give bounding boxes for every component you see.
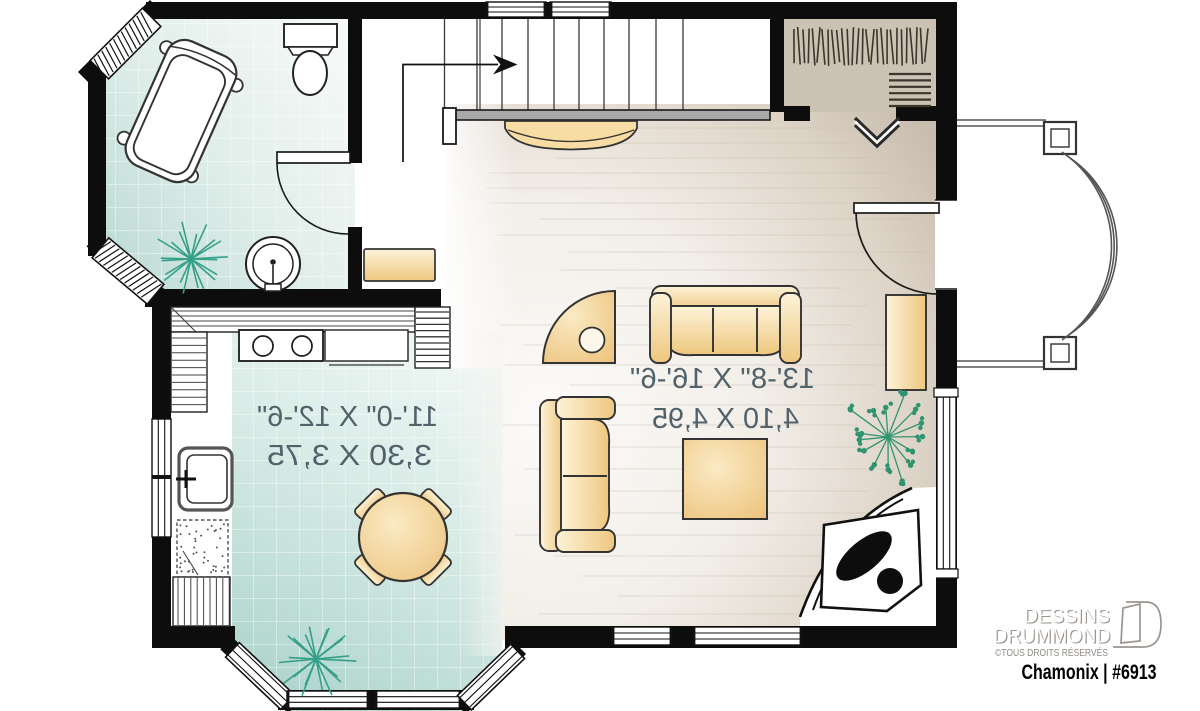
svg-text:11'-0" X 12'-6": 11'-0" X 12'-6"	[257, 401, 438, 433]
svg-text:13'-8" X 16'-6": 13'-8" X 16'-6"	[630, 363, 815, 395]
svg-text:DESSINS: DESSINS	[1024, 605, 1110, 627]
svg-text:3,30 X 3,75: 3,30 X 3,75	[267, 440, 432, 472]
svg-text:DRUMMOND: DRUMMOND	[993, 625, 1110, 647]
svg-text:Chamonix | #6913: Chamonix | #6913	[1022, 660, 1157, 684]
svg-text:4,10 X 4,95: 4,10 X 4,95	[652, 403, 799, 435]
svg-text:©TOUS DROITS RÉSERVÉS: ©TOUS DROITS RÉSERVÉS	[995, 646, 1108, 659]
